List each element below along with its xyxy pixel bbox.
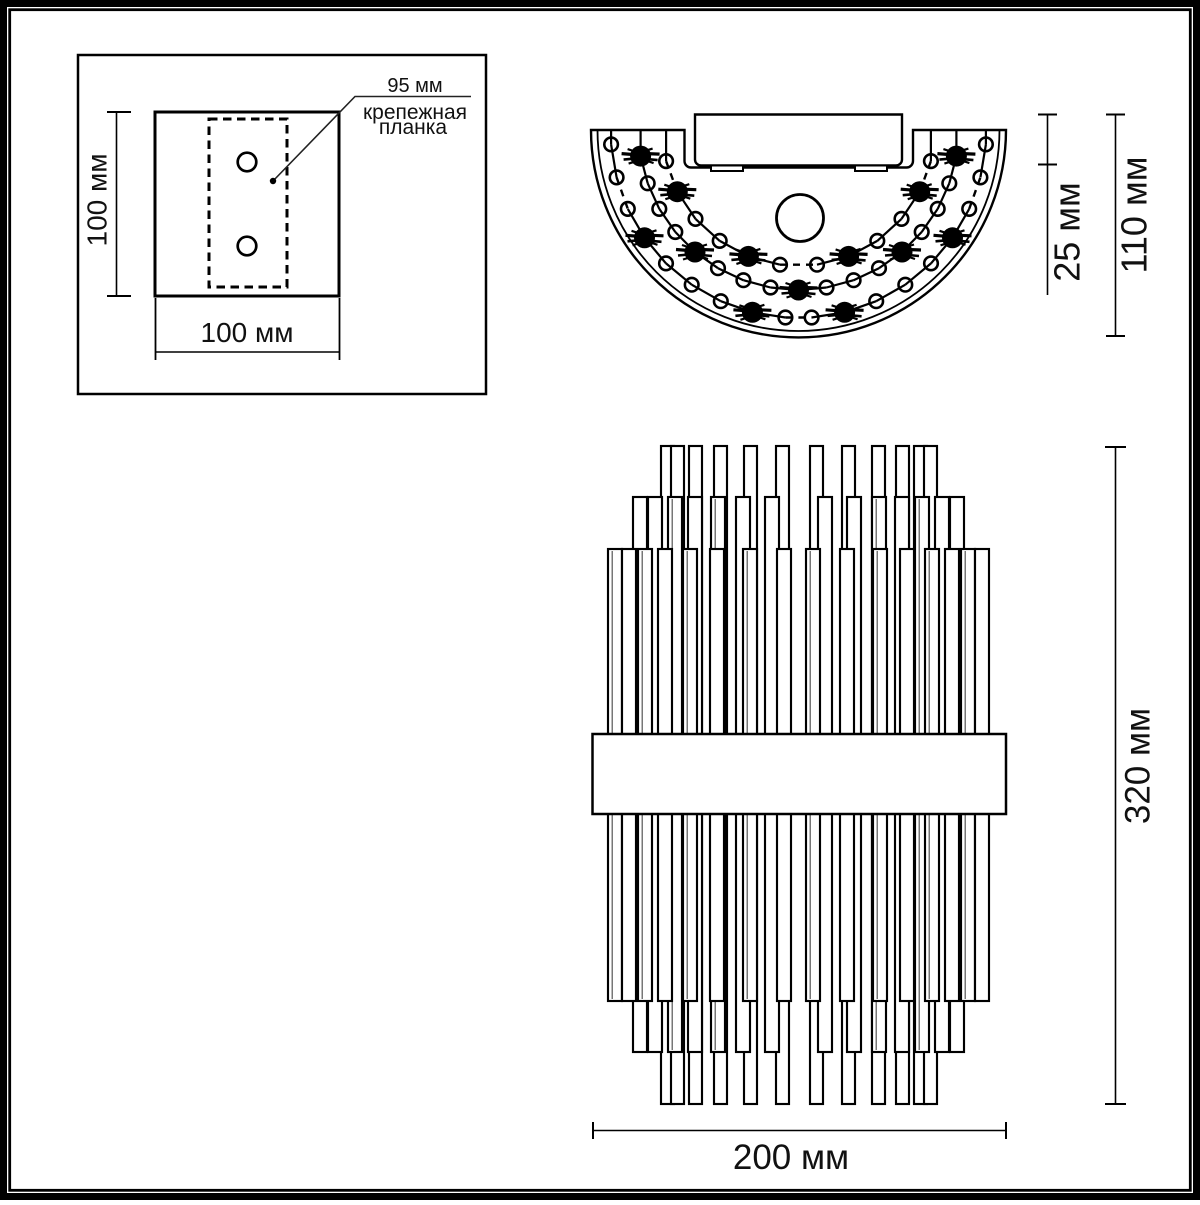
- svg-text:110 мм: 110 мм: [1114, 157, 1155, 274]
- svg-text:100 мм: 100 мм: [201, 317, 294, 348]
- svg-text:320 мм: 320 мм: [1118, 708, 1157, 824]
- svg-text:25 мм: 25 мм: [1047, 182, 1088, 282]
- svg-text:100 мм: 100 мм: [81, 154, 112, 247]
- svg-text:планка: планка: [379, 116, 448, 139]
- svg-text:95 мм: 95 мм: [387, 75, 442, 97]
- svg-text:200 мм: 200 мм: [733, 1138, 849, 1177]
